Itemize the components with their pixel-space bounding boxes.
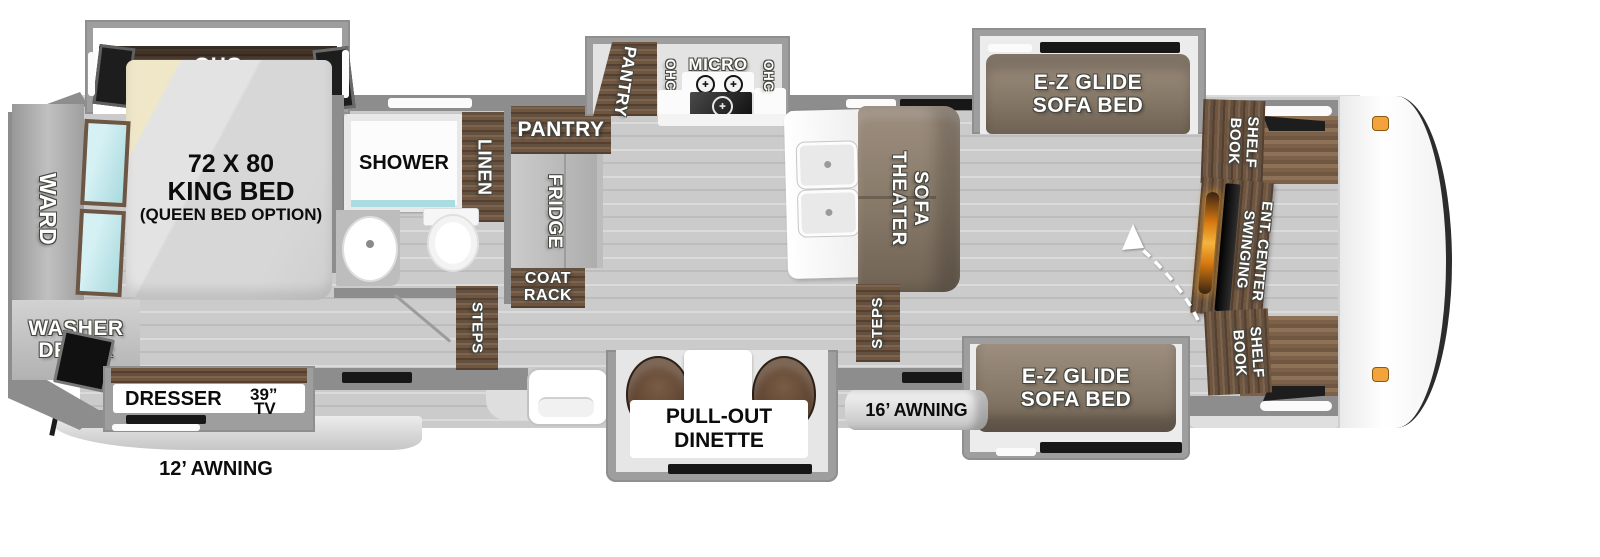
fridge: FRIDGE (511, 154, 603, 268)
bath-sink (342, 216, 398, 282)
main-awning-text: 16’ AWNING (865, 400, 967, 421)
linen-cabinet: LINEN (462, 112, 506, 222)
fridge-label: FRIDGE (543, 174, 565, 249)
bath-window (388, 98, 472, 108)
tv-label: TV (254, 399, 276, 419)
island-sink-lower (798, 189, 859, 237)
top-slide-trim (988, 44, 1032, 52)
top-slide-window (1040, 42, 1180, 53)
kitchen-pantry-label: PANTRY (610, 44, 640, 117)
sofa-bed-bottom-label2: SOFA BED (1021, 388, 1132, 411)
bedroom-window-frame-left (88, 52, 95, 96)
toilet-bowl (427, 214, 479, 272)
bed-size-label: 72 X 80 (188, 151, 274, 177)
sofa-bed-bottom: E-Z GLIDE SOFA BED (976, 344, 1176, 432)
shower: SHOWER (344, 114, 464, 212)
clearance-light-bottom (1372, 367, 1389, 382)
sofa-bed-bottom-label1: E-Z GLIDE (1022, 365, 1130, 388)
linen-label: LINEN (474, 139, 495, 196)
mirror-door-bottom (75, 209, 125, 297)
sofa-bed-top: E-Z GLIDE SOFA BED (986, 54, 1190, 134)
coat-rack: COAT RACK (511, 268, 585, 308)
sofa-bed-top-label2: SOFA BED (1033, 94, 1144, 117)
bed-option-label: (QUEEN BED OPTION) (140, 205, 322, 225)
front-skirt (1188, 414, 1342, 428)
shower-label: SHOWER (359, 152, 449, 175)
bookshelf-top-label-box: BOOK SHELF (1212, 105, 1274, 180)
kitchen-ohc-right: OHC (758, 46, 778, 106)
island-sink-upper (797, 141, 858, 189)
rear-awning-label: 12’ AWNING (138, 456, 294, 482)
mirror-door-top (80, 119, 130, 207)
rear-awning-text: 12’ AWNING (159, 458, 273, 481)
dresser-slide-window (126, 415, 206, 424)
kitchen-ohc-right-label: OHC (760, 60, 776, 92)
dresser-slide-trim (112, 424, 200, 431)
bookshelf-bottom-label: BOOK SHELF (1229, 326, 1267, 380)
bed-type-label: KING BED (167, 178, 294, 205)
sofa-bed-top-label1: E-Z GLIDE (1034, 71, 1142, 94)
kitchen-ohc-left-label: OHC (662, 59, 678, 91)
front-trim-bottom (1260, 401, 1332, 411)
bottom-wall-mid (303, 368, 528, 390)
cooktop-counter (682, 72, 754, 94)
shelf-top-label: SHELF (1242, 116, 1262, 168)
bookshelf-bottom-label-box: BOOK SHELF (1217, 314, 1278, 392)
steps-left-label: STEPS (468, 302, 485, 354)
wardrobe-label: WARD (35, 173, 61, 245)
island-faucet-lower (825, 209, 832, 216)
dresser-label: DRESSER (125, 388, 222, 411)
bottom-slide-trim (996, 448, 1036, 456)
wardrobe-mirror-doors (75, 119, 130, 299)
floorplan-canvas: OHC 72 X 80 KING BED (QUEEN BED OPTION) … (0, 0, 1600, 557)
mid-window (342, 372, 412, 383)
awning-window (902, 372, 970, 383)
ent-center-label: SWINGING ENT. CENTER (1231, 198, 1275, 302)
clearance-light-top (1372, 116, 1389, 131)
theater-sofa-seat-split (858, 196, 936, 199)
steps-right-label: STEPS (869, 297, 886, 349)
bookshelf-top-label: BOOK SHELF (1224, 115, 1261, 168)
theater-sofa: THEATER SOFA (858, 106, 960, 292)
dresser-top (111, 368, 307, 383)
wardrobe: WARD (12, 104, 84, 314)
steps-left: STEPS (456, 286, 498, 370)
bedroom-window-frame-right (342, 50, 349, 98)
swing-arrow (1098, 224, 1210, 328)
dinette-label2: DINETTE (674, 429, 764, 453)
hall-wall (504, 108, 511, 304)
king-bed-label: 72 X 80 KING BED (QUEEN BED OPTION) (136, 146, 326, 230)
pantry-label: PANTRY (518, 118, 605, 142)
theater-label: THEATER (888, 151, 909, 246)
rack-label: RACK (524, 287, 572, 305)
bath-faucet (366, 240, 374, 248)
theater-sofa-label: THEATER SOFA (887, 151, 931, 246)
island-faucet-upper (824, 161, 831, 168)
bottom-slide-window (1040, 442, 1182, 453)
dinette-label-band: PULL-OUT DINETTE (630, 400, 808, 458)
shelf-bottom-label: SHELF (1246, 326, 1267, 379)
coat-label: COAT (525, 271, 571, 287)
main-awning-roll: 16’ AWNING (845, 390, 988, 430)
entry-step-lower (538, 397, 594, 417)
fridge-door-split (564, 154, 566, 268)
dinette-slide-window (668, 464, 812, 474)
front-cap (1338, 96, 1452, 428)
dinette-label1: PULL-OUT (666, 405, 772, 429)
shower-threshold (351, 200, 455, 207)
entry-steps (527, 368, 609, 426)
counter-run (658, 114, 788, 126)
steps-right: STEPS (856, 284, 900, 362)
